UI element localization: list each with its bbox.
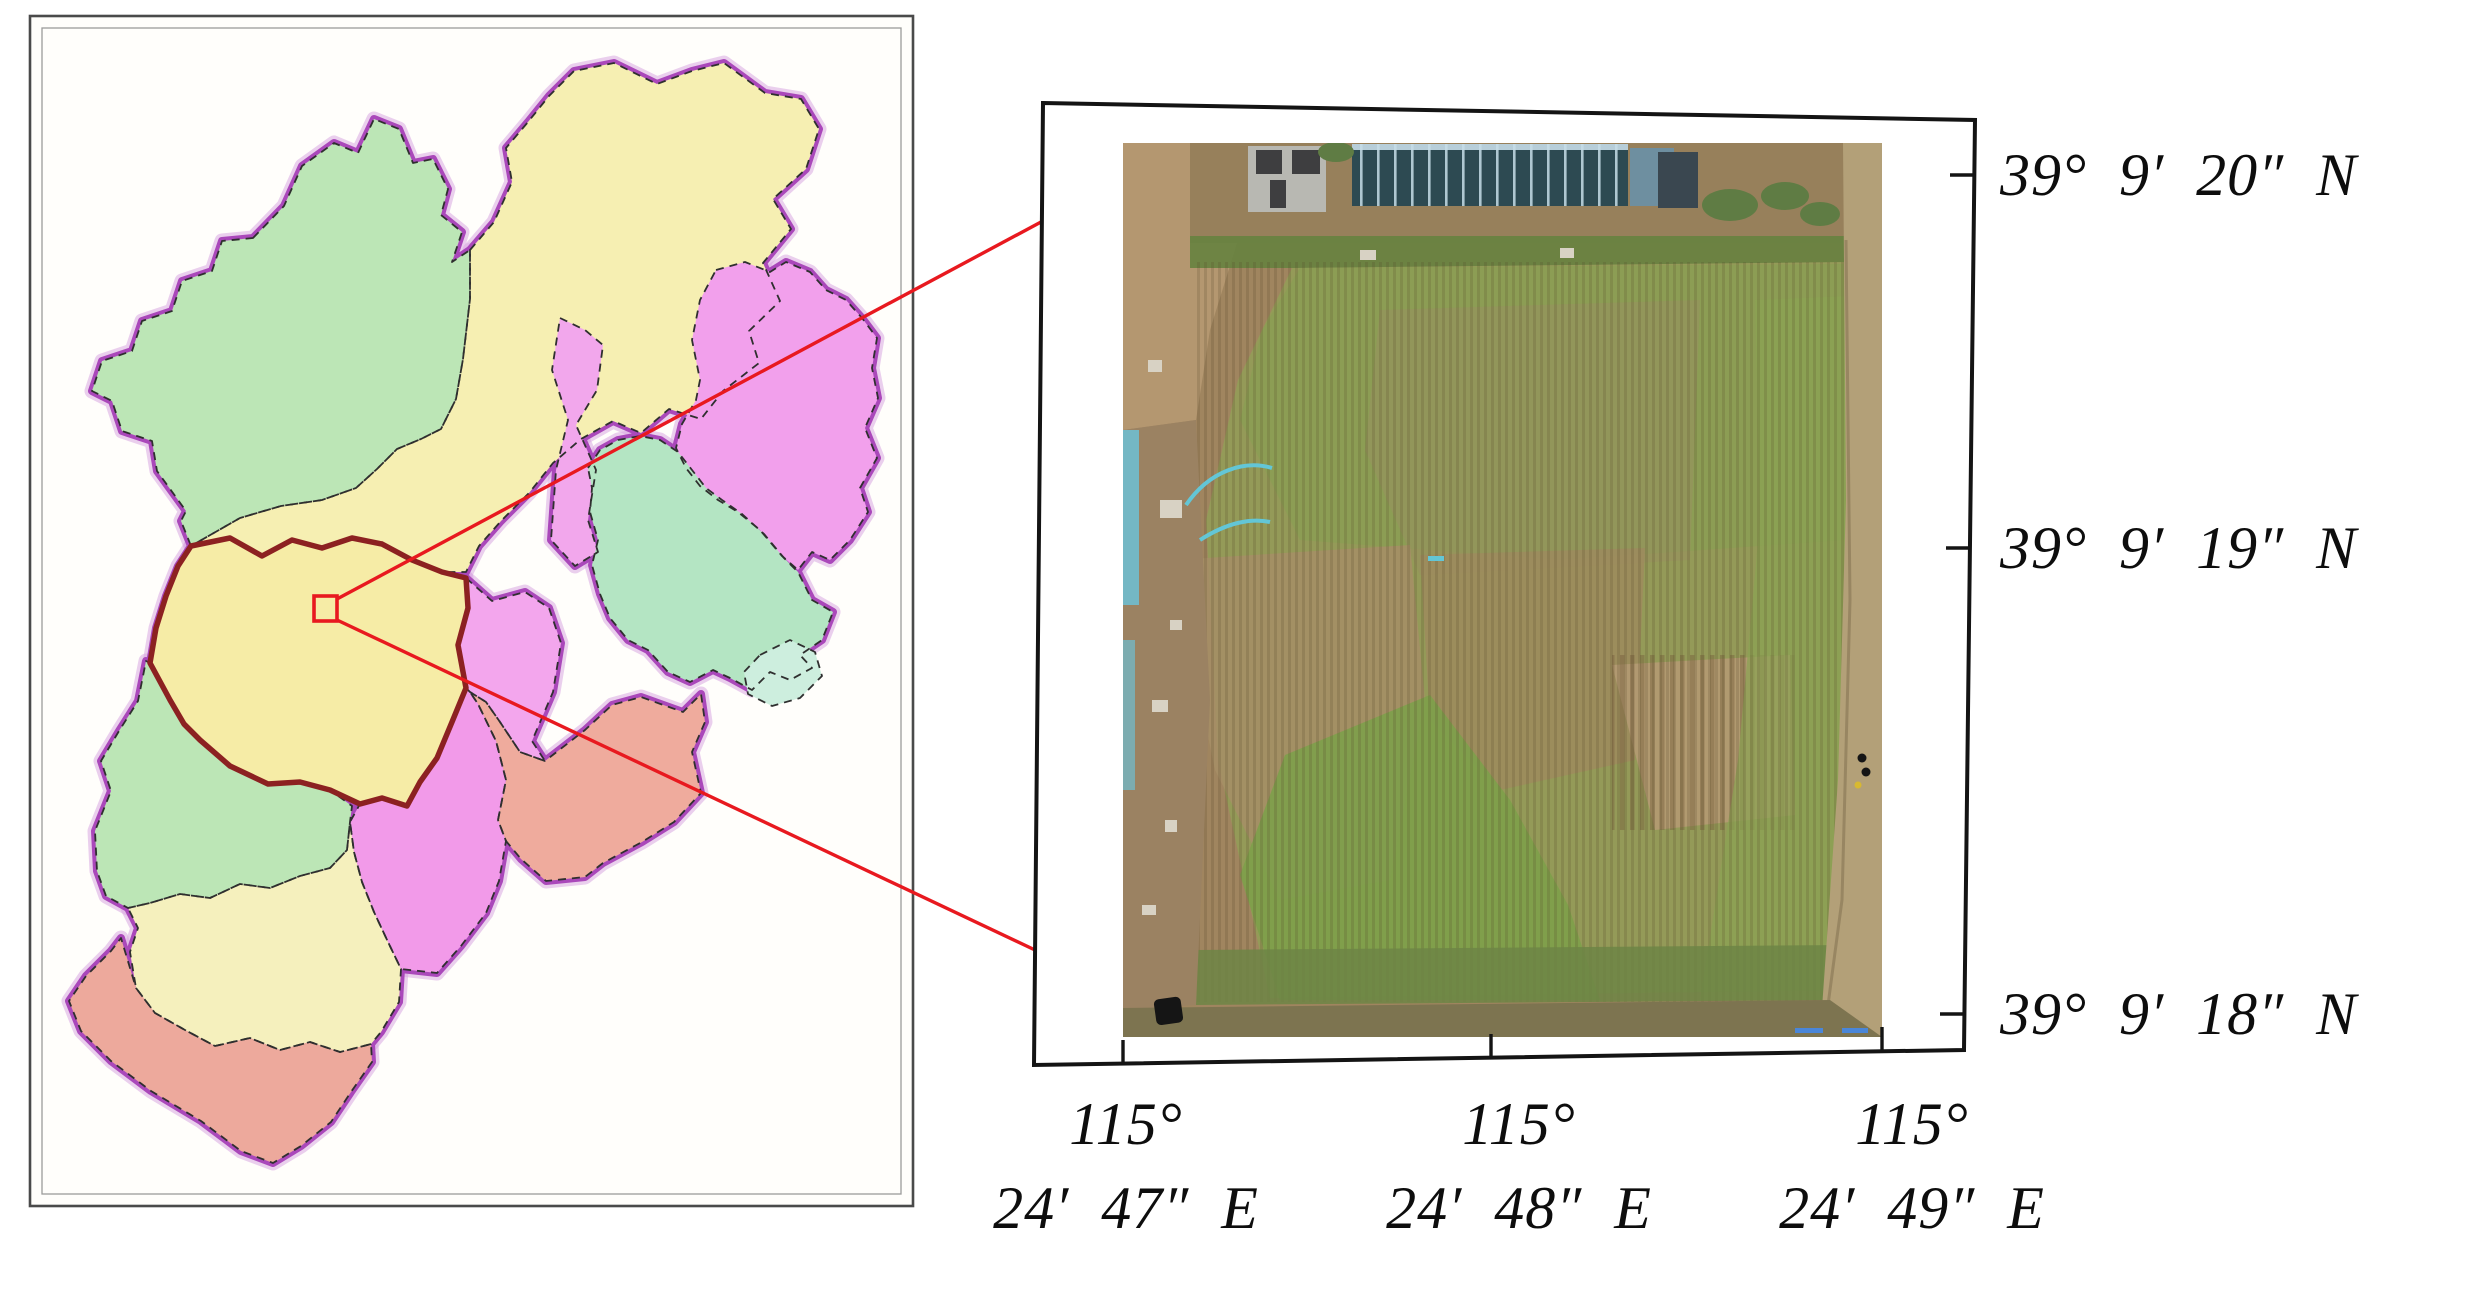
crop-rows [1196, 262, 1850, 1002]
lon-label-degrees: 115° [1289, 1093, 1749, 1155]
left-map-panel [30, 16, 913, 1206]
teal-strip-2 [1123, 640, 1135, 790]
lon-label-47e: 115° 24′ 47″ E [896, 1093, 1356, 1239]
lon-label-49e: 115° 24′ 49″ E [1682, 1093, 2142, 1239]
ortho-photo [1123, 142, 1882, 1037]
parked-car [1153, 996, 1183, 1026]
ortho-panel [1034, 103, 1975, 1065]
lon-label-minutes: 24′ 49″ E [1682, 1177, 2142, 1239]
teal-strip [1123, 430, 1139, 605]
greenhouse-top-edge [1352, 144, 1628, 150]
shed-dark [1658, 152, 1698, 208]
lon-label-degrees: 115° [896, 1093, 1356, 1155]
lat-label-18n: 39° 9′ 18″ N [2000, 983, 2470, 1045]
lon-label-48e: 115° 24′ 48″ E [1289, 1093, 1749, 1239]
greenhouse-grid [1352, 144, 1628, 206]
lon-label-degrees: 115° [1682, 1093, 2142, 1155]
lat-label-19n: 39° 9′ 19″ N [2000, 517, 2470, 579]
lon-label-minutes: 24′ 48″ E [1289, 1177, 1749, 1239]
figure-canvas: 39° 9′ 20″ N 39° 9′ 19″ N 39° 9′ 18″ N 1… [0, 0, 2471, 1290]
field-bottom-edge [1196, 945, 1848, 1005]
blue-mark-field [1428, 556, 1444, 561]
lat-label-20n: 39° 9′ 20″ N [2000, 144, 2470, 206]
lon-label-minutes: 24′ 47″ E [896, 1177, 1356, 1239]
